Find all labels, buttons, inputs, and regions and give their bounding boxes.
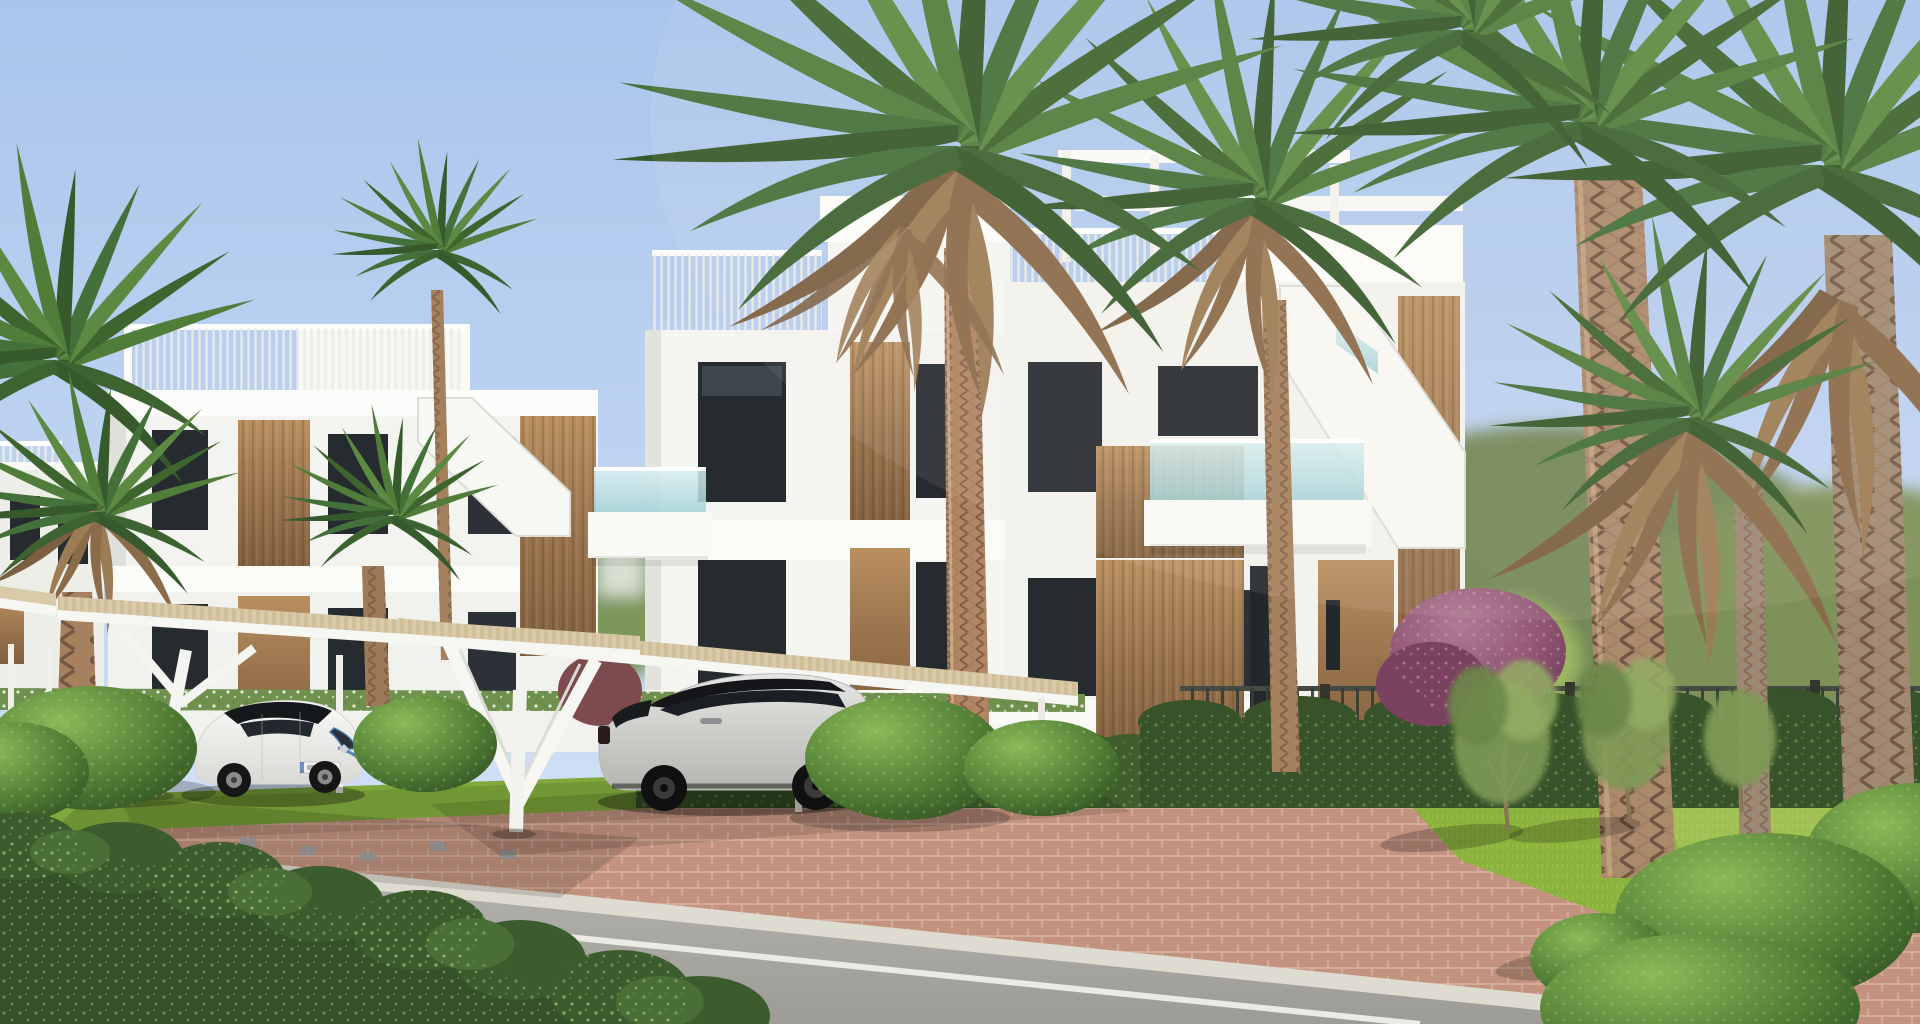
suv-tail-light — [598, 726, 610, 744]
car-wheel — [309, 761, 341, 793]
window — [1326, 600, 1340, 670]
render-scene — [0, 0, 1920, 1024]
suv-wheel — [641, 765, 687, 811]
round-bush — [353, 696, 497, 792]
rooftop-slat-railing — [126, 328, 470, 390]
window — [1028, 578, 1102, 696]
glass-balcony — [588, 467, 712, 566]
car-wheel — [217, 763, 251, 797]
suv-side-vent — [700, 718, 722, 724]
round-bush — [964, 720, 1120, 816]
